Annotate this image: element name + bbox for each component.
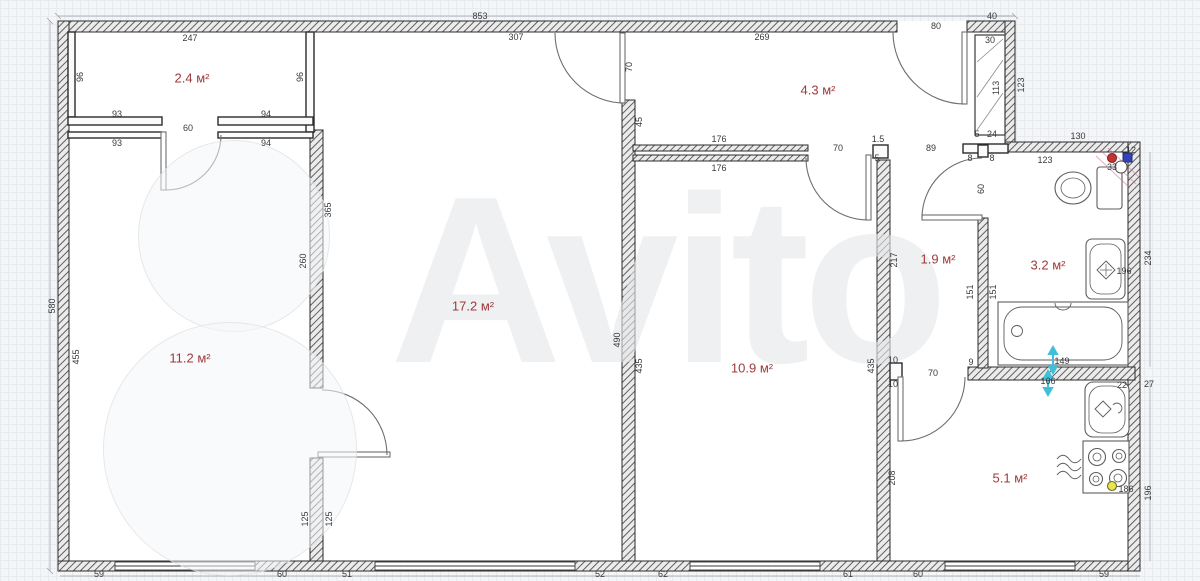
gas-valve-marker [1108, 482, 1117, 491]
jamb-bath-door [978, 145, 988, 157]
partition-room11-top-right [218, 132, 313, 138]
door-leaf-kitchen [898, 377, 903, 441]
wall-top-left-segment [58, 21, 897, 32]
partition-closet-left [68, 32, 75, 117]
door-leaf-bathroom [922, 215, 982, 220]
wall-room109-right [877, 160, 890, 561]
kitchen-sink [1085, 382, 1129, 437]
bathroom-sink [1086, 239, 1125, 299]
door-leaf-closet [161, 132, 166, 190]
wall-room11-room17-lower [310, 458, 323, 561]
partition-closet-bottom-right [218, 117, 313, 125]
cold-water-riser-icon [1123, 153, 1132, 162]
wall-room11-room17-upper [310, 130, 323, 388]
wall-bath-left [978, 218, 988, 368]
wall-room17-right [622, 100, 635, 561]
wall-upper-right [1005, 21, 1015, 152]
wall-hall-room109-b [633, 155, 808, 161]
hot-water-riser-icon [1108, 154, 1117, 163]
drain-riser-icon [1115, 161, 1127, 173]
partition-closet-bottom-left [68, 117, 162, 125]
floorplan-screenshot: Avito 8534024730726980309696701231139394… [0, 0, 1200, 581]
door-leaf-room109 [866, 155, 871, 220]
partition-room11-top-left [68, 132, 162, 138]
wall-hall-room109-a [633, 145, 808, 151]
bathtub [998, 302, 1128, 365]
stove [1083, 441, 1129, 493]
door-leaf-room17 [620, 33, 625, 103]
door-leaf-entrance [962, 32, 967, 104]
floorplan-drawing [0, 0, 1200, 581]
door-leaf-room11 [318, 452, 390, 457]
wardrobe [975, 35, 1005, 135]
wall-right [1128, 142, 1140, 571]
wall-bathroom-top [1005, 142, 1140, 152]
jamb-hall-corridor [873, 145, 888, 158]
